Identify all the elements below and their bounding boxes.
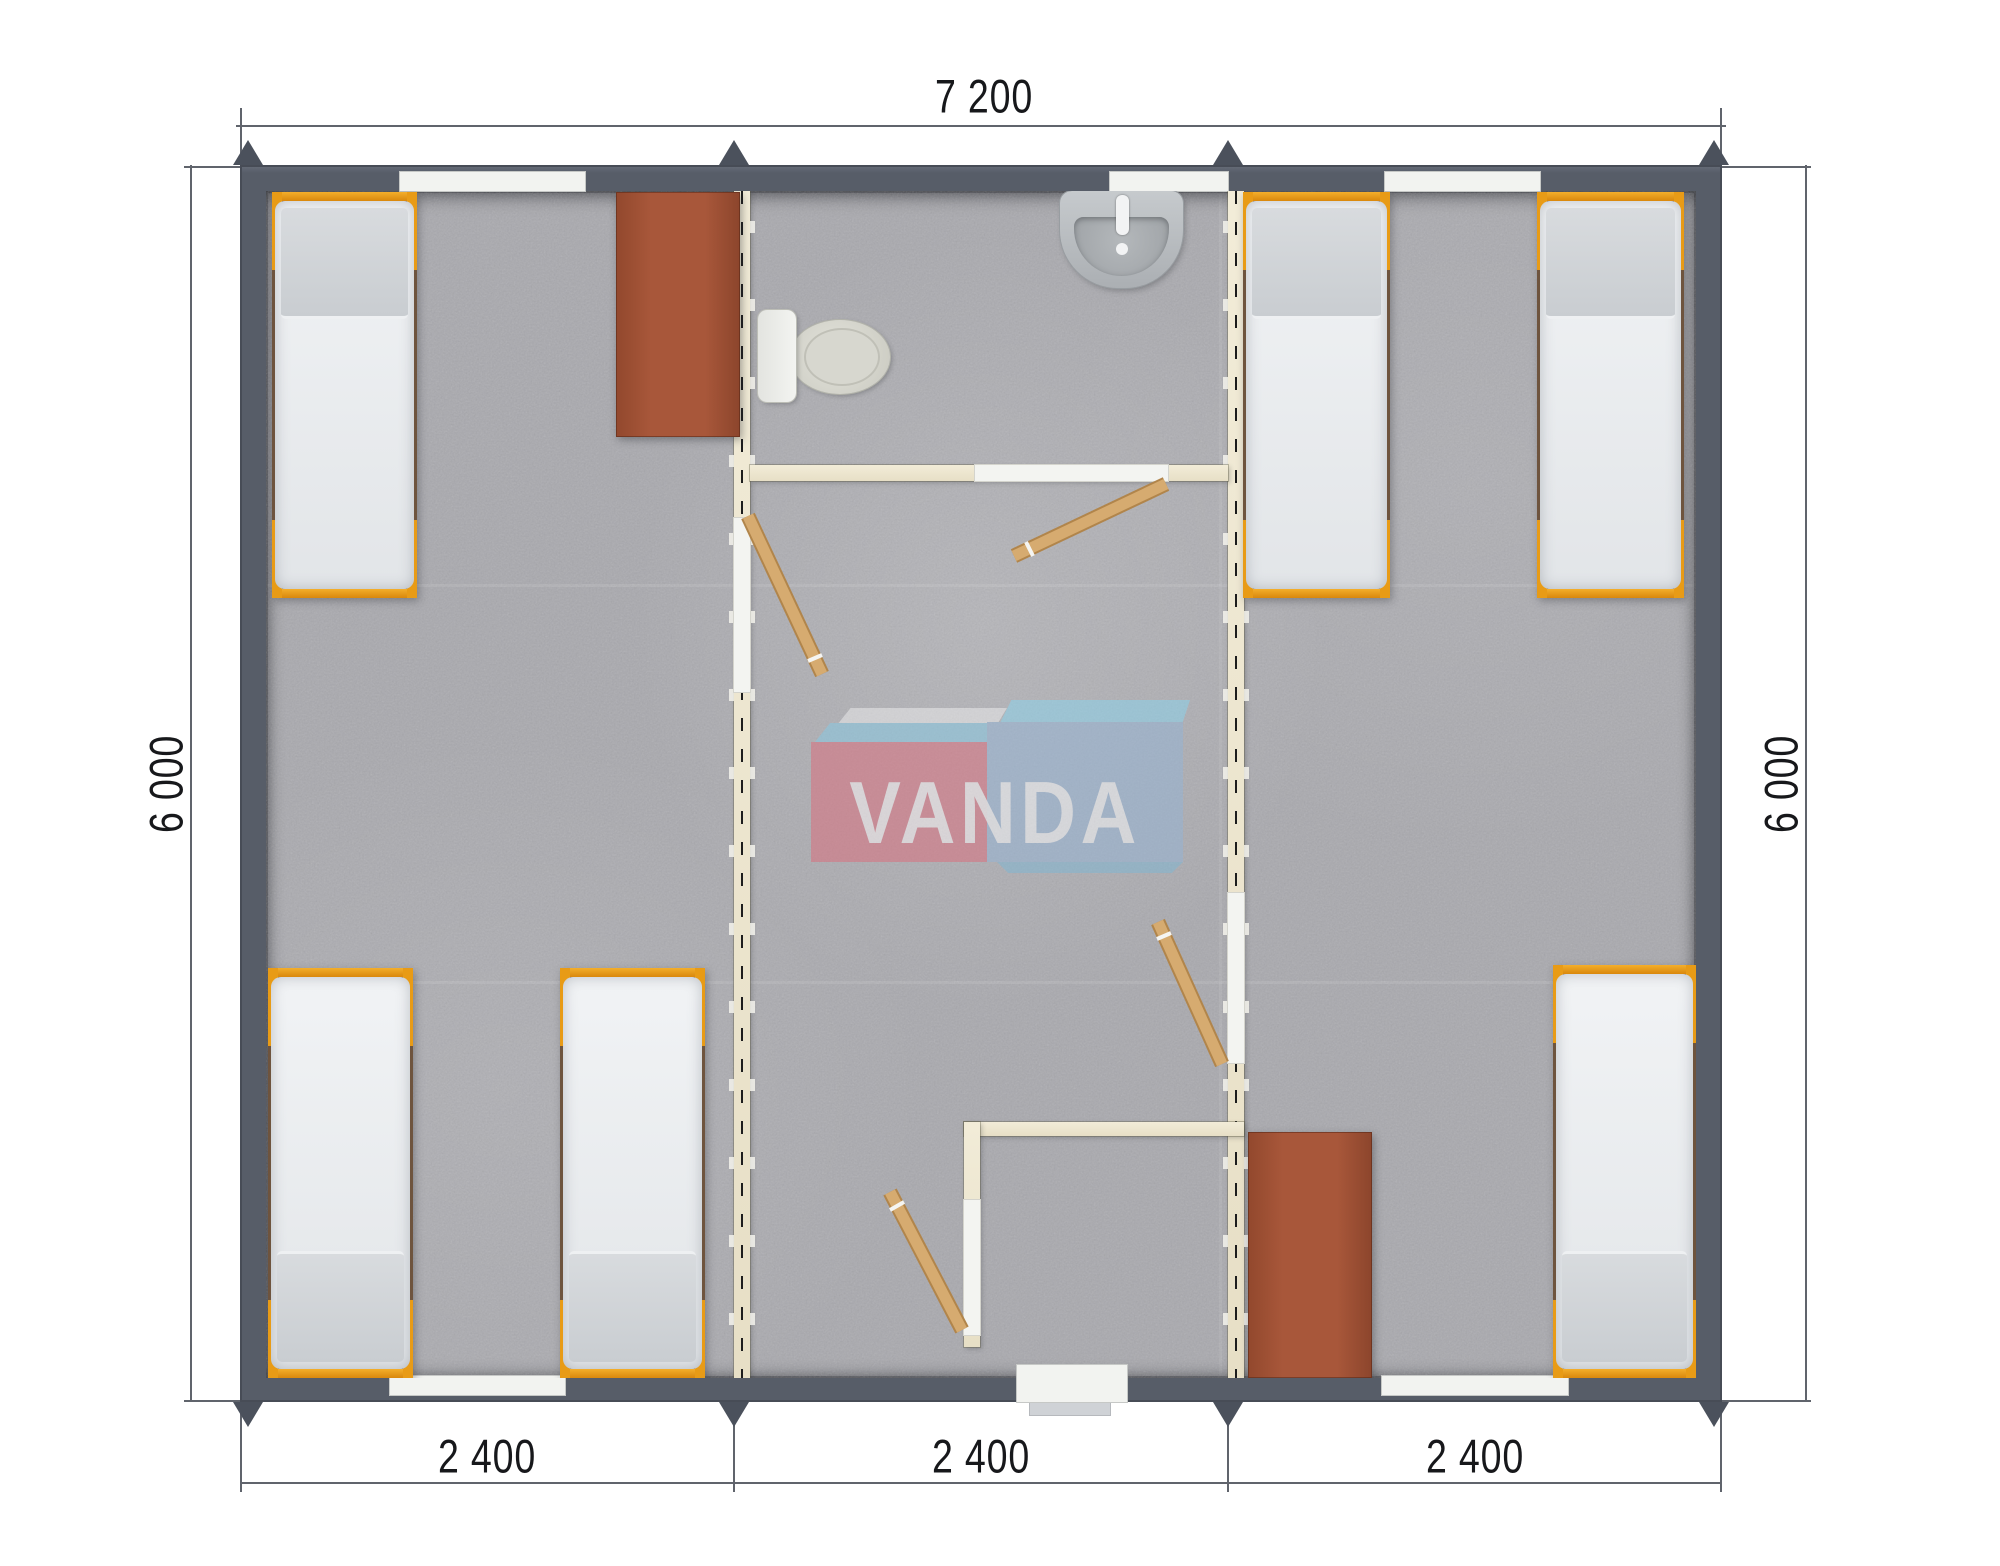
toilet-seat [804,328,880,386]
entrance-doorway [1017,1365,1127,1402]
wall-studs [1223,221,1228,1378]
dimension-line-right [1805,165,1807,1402]
bed-rail [560,1369,705,1378]
bed-top-middle-right [1243,192,1390,598]
bed-rail [272,589,417,598]
floor-area: VANDA [266,191,1696,1378]
bed-top-left [272,192,417,598]
sink-icon [1060,191,1183,288]
toilet-tank [758,310,796,402]
vanda-watermark: VANDA [785,700,1205,875]
sink-faucet [1116,195,1129,235]
logo-blue-box-top [1000,700,1190,723]
bed-pillow [1546,208,1675,319]
window-top-bathroom [1110,172,1228,191]
bed-rail [560,968,705,977]
door-opening-vestibule [964,1200,980,1335]
window-top-right-room [1385,172,1540,191]
door-opening-right-room [1228,893,1244,1063]
floor-plan-canvas: 7 200 6 000 6 000 2 400 2 400 2 400 [0,0,2000,1566]
toilet-icon [790,320,890,394]
dimension-ext-left-top [184,166,240,168]
dimension-ext-right-bottom [1722,1400,1811,1402]
wardrobe-bottom-middle-module [1248,1132,1372,1378]
bed-rail [1553,965,1696,974]
logo-text: VANDA [810,762,1180,864]
module-joint-arrow-top-1 [233,140,263,165]
bed-pillow [281,208,408,319]
sink-knob [1116,243,1128,255]
window-top-left-room [400,172,585,191]
dimension-bottom-segment-3: 2 400 [1426,1429,1524,1484]
dimension-line-left [190,165,192,1402]
bed-rail [272,192,417,201]
dimension-right-height: 6 000 [1754,735,1809,833]
bed-rail [1553,1369,1696,1378]
window-bottom-left-room [390,1376,565,1395]
vestibule-wall-horizontal [964,1122,1244,1136]
building-outline: VANDA [240,165,1722,1402]
dimension-left-height: 6 000 [139,735,194,833]
bed-rail [1537,192,1684,201]
wall-studs [750,221,755,1378]
bed-rail [1243,589,1390,598]
bed-pillow [1562,1251,1687,1362]
dimension-ext-right-top [1722,166,1811,168]
window-bottom-right-room [1382,1376,1568,1395]
bed-pillow [1252,208,1381,319]
bed-top-right [1537,192,1684,598]
bed-rail [1537,589,1684,598]
dimension-top-width: 7 200 [935,69,1033,124]
module-joint-arrow-bottom-2 [719,1402,749,1427]
bed-pillow [277,1251,404,1362]
bed-rail [268,1369,413,1378]
door-opening-bathroom [975,465,1168,481]
dimension-bottom-segment-2: 2 400 [932,1429,1030,1484]
bed-rail [1243,192,1390,201]
module-joint-arrow-bottom-1 [233,1402,263,1427]
module-joint-arrow-bottom-4 [1699,1402,1729,1427]
module-joint-arrow-top-2 [719,140,749,165]
dimension-line-top [236,125,1726,127]
module-joint-arrow-top-4 [1699,140,1729,165]
entrance-step [1030,1402,1110,1415]
module-joint-arrow-top-3 [1213,140,1243,165]
bed-bottom-left-1 [268,968,413,1378]
partition-wall-right-module [1228,191,1244,1378]
module-joint-arrow-bottom-3 [1213,1402,1243,1427]
bed-bottom-right [1553,965,1696,1378]
door-opening-left-room [734,518,750,692]
bed-rail [268,968,413,977]
dimension-ext-left-bottom [184,1400,240,1402]
bed-pillow [569,1251,696,1362]
logo-highlight [837,708,1007,725]
bed-bottom-left-2 [560,968,705,1378]
dimension-bottom-segment-1: 2 400 [438,1429,536,1484]
wardrobe-top-left-module [616,192,740,437]
